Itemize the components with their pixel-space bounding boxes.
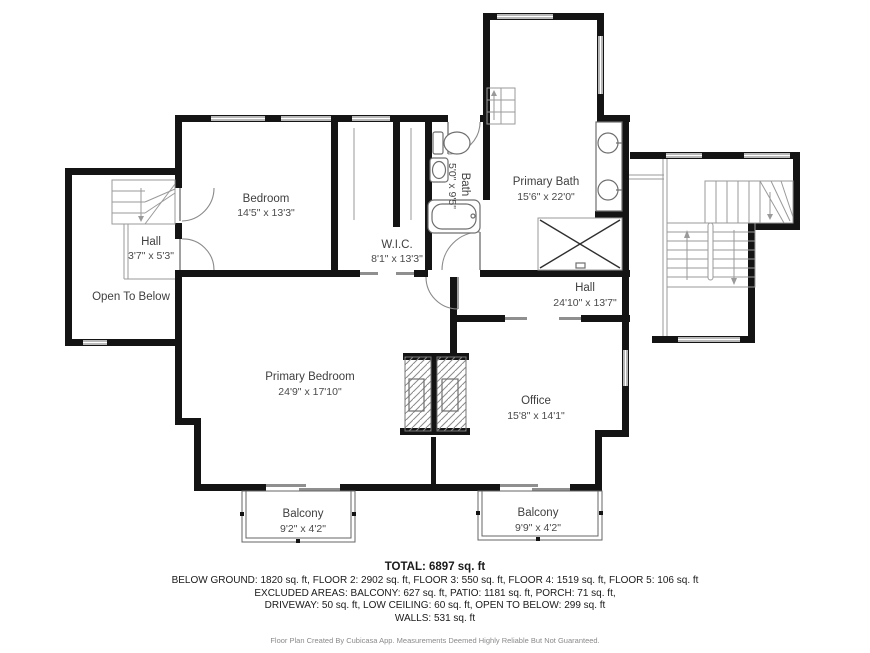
- stairs-left-wing: [112, 180, 175, 279]
- room-dims-bedroom: 14'5" x 13'3": [237, 207, 295, 219]
- floor-areas-line: BELOW GROUND: 1820 sq. ft, FLOOR 2: 2902…: [0, 575, 870, 586]
- room-label-balcony-left: Balcony: [283, 508, 324, 520]
- room-dims-balcony-left: 9'2" x 4'2": [280, 523, 326, 535]
- window: [83, 340, 107, 345]
- room-dims-balcony-right: 9'9" x 4'2": [515, 522, 561, 534]
- sliding-door: [500, 484, 570, 491]
- excluded-areas-line: EXCLUDED AREAS: BALCONY: 627 sq. ft, PAT…: [0, 588, 870, 599]
- vanity: [596, 122, 622, 211]
- window: [352, 116, 390, 121]
- room-label-bedroom: Bedroom: [243, 193, 290, 205]
- sliding-door: [266, 484, 340, 491]
- room-dims-primary-bedroom: 24'9" x 17'10": [278, 386, 342, 398]
- door: [442, 232, 480, 270]
- shower: [538, 218, 622, 270]
- vanity-sink-1: [598, 133, 618, 153]
- window: [281, 116, 331, 121]
- room-label-primary-bath: Primary Bath: [513, 176, 579, 188]
- room-label-hall-right: Hall: [575, 282, 595, 294]
- room-label-wic: W.I.C.: [381, 239, 412, 251]
- floor-plan: Bedroom 14'5" x 13'3" W.I.C. 8'1" x 13'3…: [0, 0, 870, 560]
- window: [678, 337, 740, 342]
- window: [744, 153, 790, 158]
- stairs-upper-room: [487, 88, 515, 124]
- room-label-primary-bedroom: Primary Bedroom: [265, 371, 354, 383]
- cased-opening: [505, 317, 581, 320]
- room-dims-wic: 8'1" x 13'3": [371, 253, 423, 265]
- stairs-right-wing: [629, 159, 793, 336]
- room-label-balcony-right: Balcony: [518, 507, 559, 519]
- walls: [65, 13, 800, 491]
- room-dims-hall-left: 3'7" x 5'3": [128, 250, 174, 262]
- excluded-areas-line-2: DRIVEWAY: 50 sq. ft, LOW CEILING: 60 sq.…: [0, 600, 870, 611]
- toilet: [433, 132, 470, 154]
- disclaimer: Floor Plan Created By Cubicasa App. Meas…: [0, 636, 870, 645]
- walls-area-line: WALLS: 531 sq. ft: [0, 613, 870, 624]
- shower-drain: [576, 263, 585, 268]
- room-label-hall-left: Hall: [141, 236, 161, 248]
- room-dims-hall-right: 24'10" x 13'7": [553, 297, 617, 309]
- area-summary: TOTAL: 6897 sq. ft BELOW GROUND: 1820 sq…: [0, 561, 870, 645]
- room-dims-primary-bath: 15'6" x 22'0": [517, 191, 575, 203]
- total-area: TOTAL: 6897 sq. ft: [0, 561, 870, 573]
- floor-plan-page: Bedroom 14'5" x 13'3" W.I.C. 8'1" x 13'3…: [0, 0, 870, 653]
- room-label-office: Office: [521, 395, 551, 407]
- door: [180, 239, 214, 270]
- window: [211, 116, 265, 121]
- room-dims-office: 15'8" x 14'1": [507, 410, 565, 422]
- window: [623, 350, 628, 386]
- vanity-sink-2: [598, 180, 618, 200]
- window: [666, 153, 702, 158]
- sink: [430, 158, 448, 182]
- cased-opening: [360, 272, 414, 275]
- window: [497, 14, 553, 19]
- window: [598, 36, 603, 94]
- door: [180, 188, 214, 221]
- room-label-open-to-below: Open To Below: [92, 291, 170, 303]
